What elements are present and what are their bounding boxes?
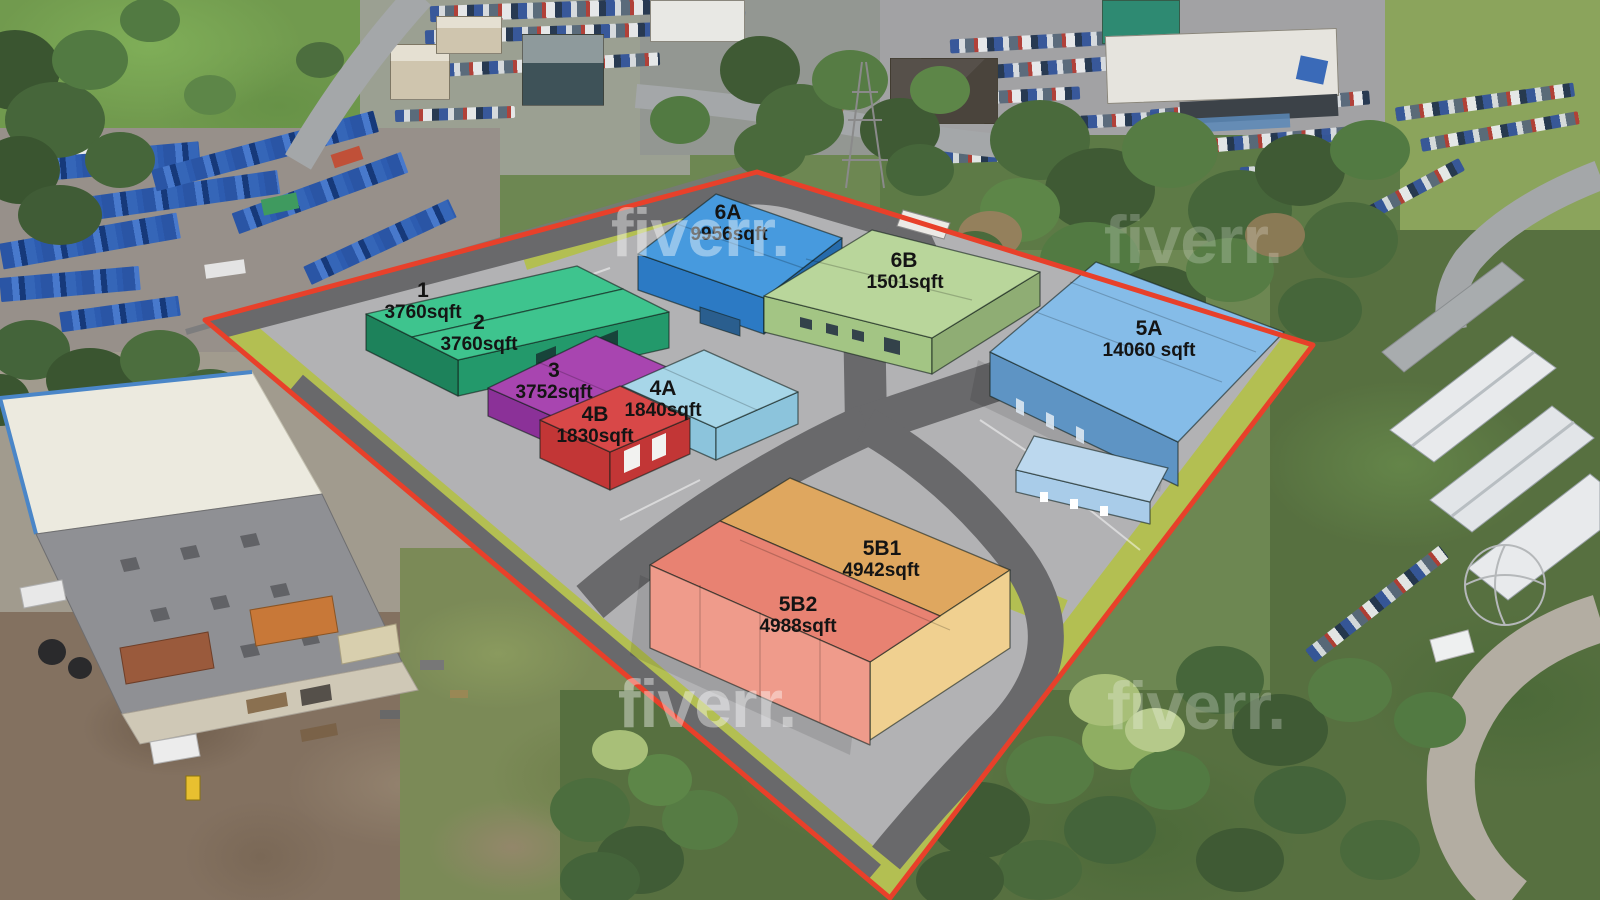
unit-5b2-label: 5B2 xyxy=(779,593,818,616)
unit-2-label: 2 xyxy=(473,311,485,334)
unit-5a-label: 5A xyxy=(1136,317,1163,340)
unit-4b-label: 4B xyxy=(582,403,609,426)
greenhouses xyxy=(1382,262,1600,662)
unit-6b-area: 1501sqft xyxy=(866,272,944,293)
unit-4b-area: 1830sqft xyxy=(556,426,634,447)
unit-6a-area: 9956sqft xyxy=(690,224,768,245)
unit-4a-label: 4A xyxy=(650,377,677,400)
unit-5b2-area: 4988sqft xyxy=(759,616,837,637)
unit-6b-label: 6B xyxy=(891,249,918,272)
unit-1-area: 3760sqft xyxy=(384,302,462,323)
unit-5a-area: 14060 sqft xyxy=(1103,340,1197,361)
unit-1-label: 1 xyxy=(417,279,429,302)
aerial-site-plan: 1 3760sqft 2 3760sqft 3 3752sqft 4A 1840… xyxy=(0,0,1600,900)
unit-3-area: 3752sqft xyxy=(515,382,593,403)
unit-5b1-label: 5B1 xyxy=(863,537,902,560)
aerial-vector-layer: 1 3760sqft 2 3760sqft 3 3752sqft 4A 1840… xyxy=(0,0,1600,900)
unit-3-label: 3 xyxy=(548,359,560,382)
unit-5b1-area: 4942sqft xyxy=(842,560,920,581)
unit-4a-area: 1840sqft xyxy=(624,400,702,421)
unit-6a-label: 6A xyxy=(715,201,742,224)
unit-2-area: 3760sqft xyxy=(440,334,518,355)
